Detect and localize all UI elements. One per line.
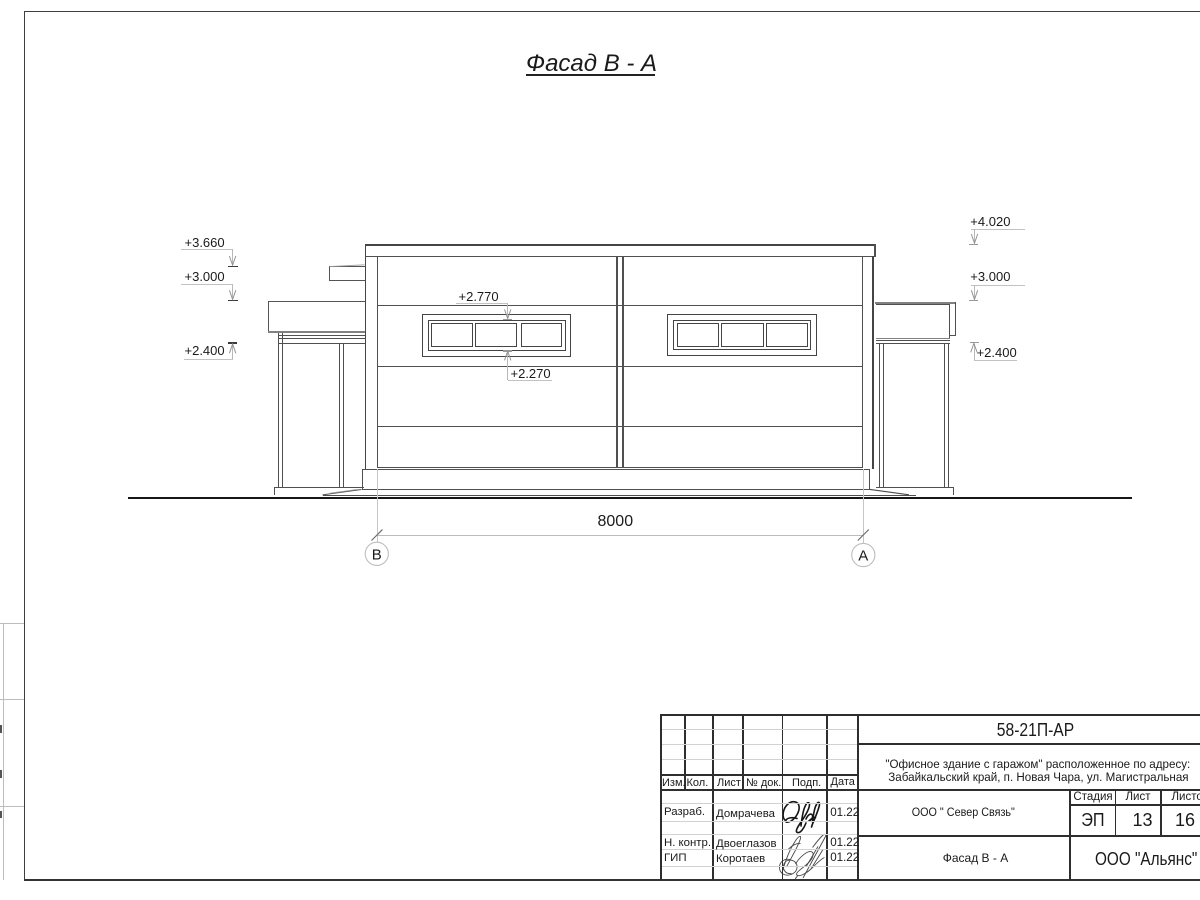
svg-text:В: В bbox=[372, 546, 382, 563]
svg-text:А: А bbox=[858, 548, 868, 565]
